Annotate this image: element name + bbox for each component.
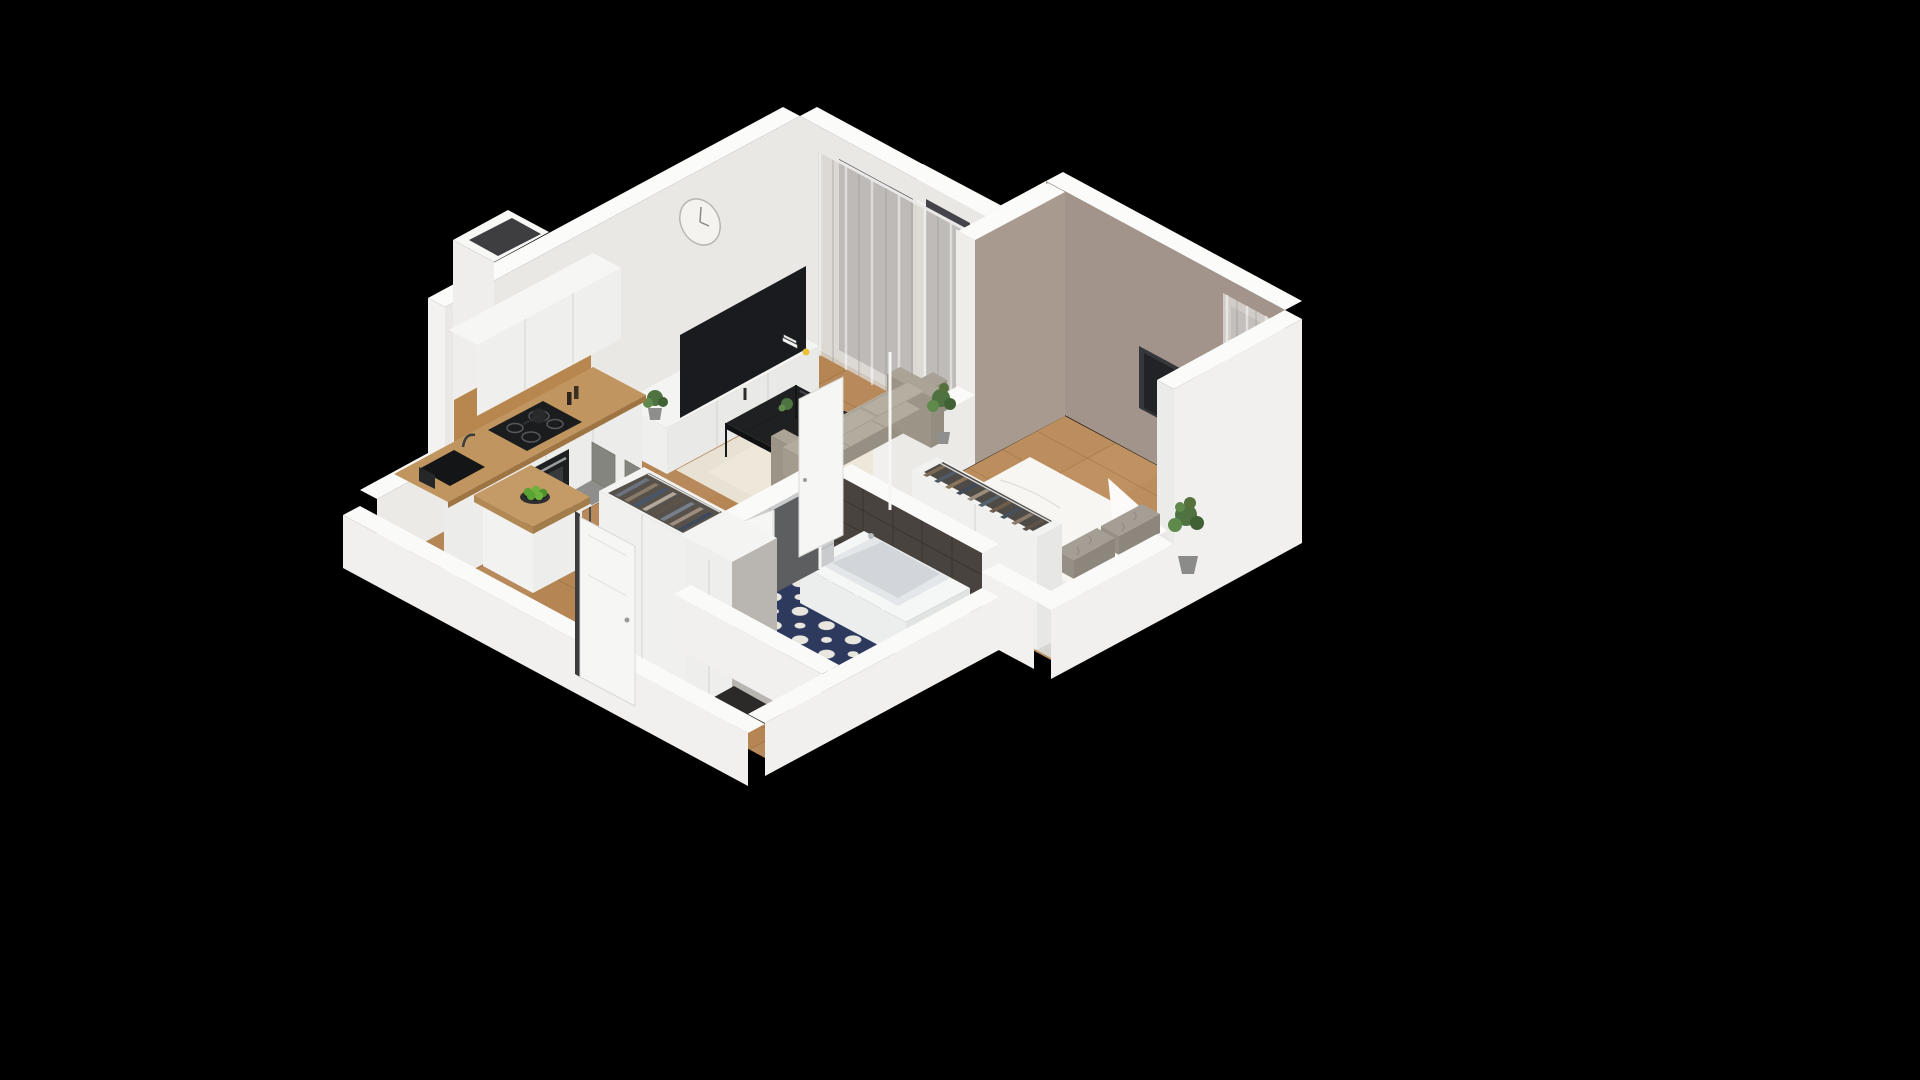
- plant-pot: [936, 432, 950, 444]
- plant-pot: [648, 408, 662, 420]
- tub-faucet: [868, 533, 874, 539]
- door-handle: [625, 618, 630, 623]
- door-handle: [803, 478, 807, 482]
- pepper-grinder: [574, 386, 579, 399]
- bedroom-door-open: [799, 377, 843, 557]
- pepper-grinder: [567, 392, 572, 405]
- entrance-door-gap: [575, 511, 580, 677]
- yellow-mug: [803, 349, 810, 356]
- clock-hand-minute: [700, 207, 701, 222]
- floorplan-render-canvas: [0, 0, 1920, 1080]
- apartment-render: [0, 0, 1920, 1080]
